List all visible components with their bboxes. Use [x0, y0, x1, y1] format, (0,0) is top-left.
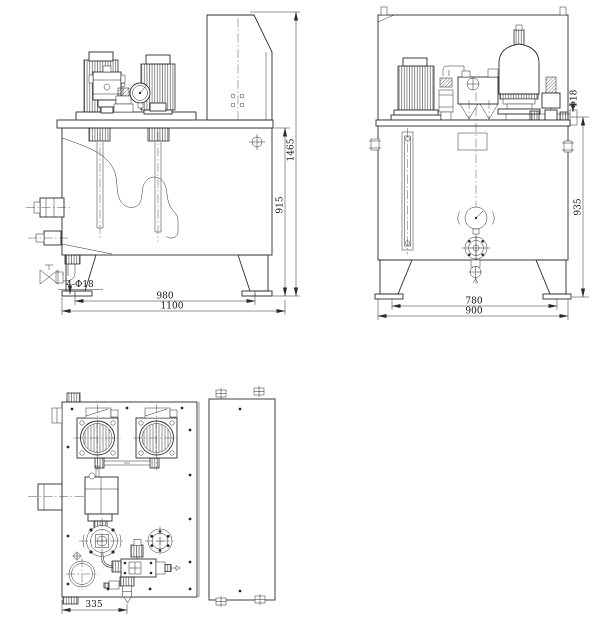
front-foot-left: [62, 291, 92, 296]
front-tank-body: [62, 128, 272, 255]
front-pipe-centerlines: [100, 132, 158, 242]
front-sloped-bottom: [62, 244, 112, 254]
side-view: Φ18 935 780 900: [369, 7, 589, 320]
front-pump-right-flange: [150, 103, 166, 111]
side-foot-right: [543, 294, 571, 299]
side-panel-tab-right: [560, 7, 566, 15]
front-foot-right: [242, 291, 272, 296]
side-leg-left: [380, 260, 412, 294]
side-nameplate: [458, 133, 487, 150]
front-dim-text-915: 915: [276, 196, 286, 213]
side-dim-text-phi18: Φ18: [570, 89, 580, 108]
front-coupling-left: [98, 100, 116, 107]
top-view: 335: [28, 386, 275, 614]
side-panel-tab-left: [381, 7, 387, 15]
top-left-stub: [38, 484, 62, 510]
side-motor: [391, 58, 441, 120]
side-dim-text-935: 935: [574, 198, 584, 215]
front-dim-text-1100: 1100: [161, 302, 184, 312]
front-electrical-panel: [207, 15, 272, 120]
top-panel-brackets: [216, 386, 265, 607]
front-return-fitting: [26, 198, 72, 217]
top-crossover-pipe: [95, 458, 159, 477]
top-dim-text-335: 335: [85, 600, 102, 610]
front-dim-text-1465: 1465: [287, 138, 297, 161]
drawing-sheet: 915 1465 980 1100 4-Φ18: [0, 0, 600, 618]
side-tank: [369, 92, 574, 299]
top-panel: [209, 399, 275, 600]
top-filler-breather: [66, 552, 98, 591]
side-pressure-gauge: [458, 207, 494, 234]
side-dim-text-900: 900: [465, 307, 482, 317]
front-base-plate: [76, 112, 196, 120]
front-dim-text-holes: 4-Φ18: [66, 280, 94, 290]
side-outlet-port: [570, 110, 577, 125]
front-pump-neck-1: [89, 128, 110, 141]
side-accumulator-shell: [499, 44, 539, 94]
front-pump-neck-2: [148, 128, 169, 141]
front-motor-left-cap: [89, 52, 113, 61]
side-dim-text-780: 780: [465, 297, 482, 307]
side-filter-body: [439, 90, 453, 112]
front-motor-pump-right: [141, 55, 175, 114]
side-leg-right: [536, 260, 566, 294]
front-leg-right: [238, 255, 268, 291]
front-dim-text-980: 980: [156, 292, 173, 302]
side-drain-port: [469, 260, 482, 283]
side-foot-left: [375, 294, 403, 299]
front-lifting-point: [249, 134, 265, 150]
front-suction-fitting: [28, 231, 70, 245]
technical-drawing-canvas: 915 1465 980 1100 4-Φ18: [0, 0, 600, 618]
side-flanged-port: [462, 236, 490, 260]
front-view: 915 1465 980 1100 4-Φ18: [26, 12, 300, 315]
top-flanged-port: [145, 526, 175, 556]
front-tank: [57, 120, 273, 296]
top-edge-strip: [199, 402, 209, 597]
front-drain-valve-handle: [40, 270, 58, 284]
top-relief-valve: [156, 562, 165, 574]
side-tank-top-plate: [376, 120, 570, 126]
front-motor-right-cap: [146, 55, 170, 64]
side-level-gauge: [402, 128, 413, 254]
front-panel-outline: [207, 15, 272, 120]
front-breakout-curve: [62, 138, 178, 238]
front-tank-top-plate: [57, 120, 273, 128]
front-relief-valve-spring: [118, 88, 129, 96]
